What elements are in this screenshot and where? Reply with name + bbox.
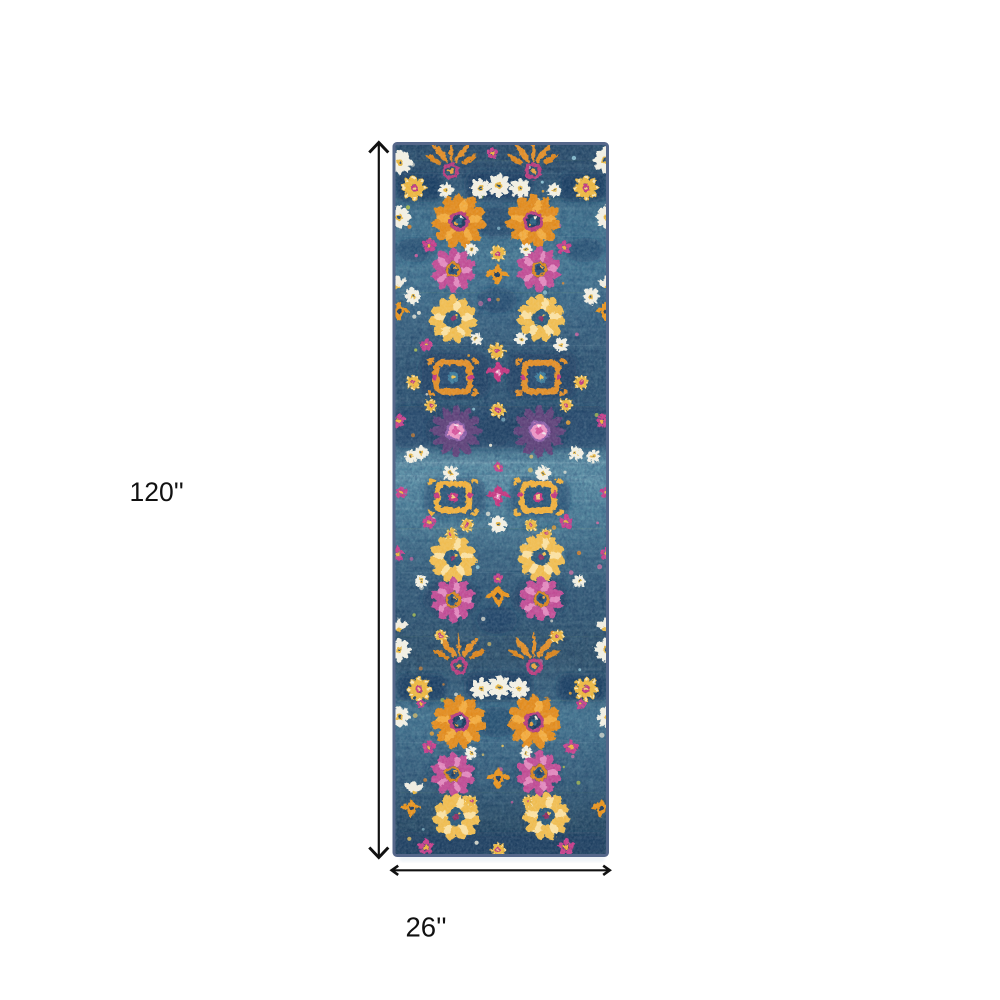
- svg-text:120'': 120'': [130, 477, 184, 507]
- svg-text:26'': 26'': [406, 912, 447, 943]
